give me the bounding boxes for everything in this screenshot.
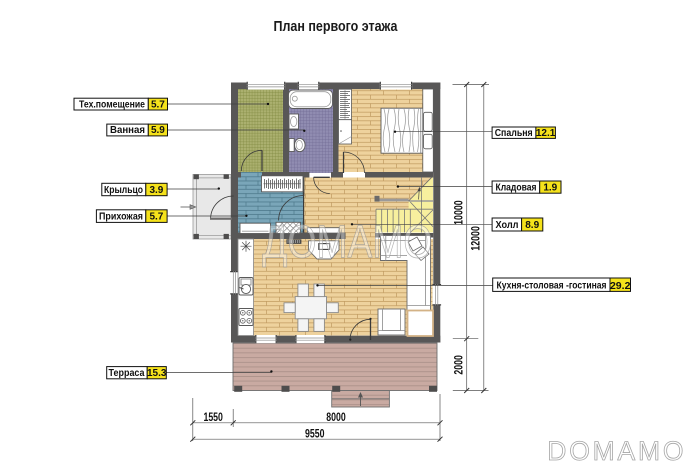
svg-text:15.3: 15.3 <box>147 368 167 379</box>
svg-text:Холл: Холл <box>496 220 519 231</box>
svg-text:Кладовая: Кладовая <box>496 182 537 193</box>
svg-text:2000: 2000 <box>453 355 465 375</box>
svg-text:Тех.помещение: Тех.помещение <box>79 99 145 110</box>
svg-text:5.7: 5.7 <box>149 211 163 222</box>
svg-text:Терраса: Терраса <box>109 368 145 379</box>
svg-text:29.2: 29.2 <box>610 280 631 292</box>
svg-text:5.7: 5.7 <box>151 99 165 110</box>
svg-text:5.9: 5.9 <box>151 125 165 136</box>
svg-text:12000: 12000 <box>470 226 482 251</box>
svg-text:10000: 10000 <box>453 200 465 225</box>
svg-text:План первого этажа: План первого этажа <box>274 18 399 35</box>
svg-text:1550: 1550 <box>203 412 223 424</box>
svg-text:3.9: 3.9 <box>149 185 163 196</box>
svg-text:Ванная: Ванная <box>110 125 145 136</box>
svg-text:DOMAMO: DOMAMO <box>547 436 686 466</box>
svg-text:Прихожая: Прихожая <box>99 211 143 222</box>
svg-text:8000: 8000 <box>326 412 346 424</box>
svg-text:Крыльцо: Крыльцо <box>104 185 143 196</box>
svg-text:8.9: 8.9 <box>525 220 539 231</box>
svg-text:9550: 9550 <box>305 428 325 440</box>
svg-text:Спальня: Спальня <box>495 128 533 139</box>
svg-text:Кухня-столовая -гостиная: Кухня-столовая -гостиная <box>497 280 607 291</box>
svg-text:ДОМАМО: ДОМАМО <box>262 216 432 268</box>
svg-text:1.9: 1.9 <box>543 182 557 193</box>
svg-text:12.1: 12.1 <box>536 128 556 139</box>
